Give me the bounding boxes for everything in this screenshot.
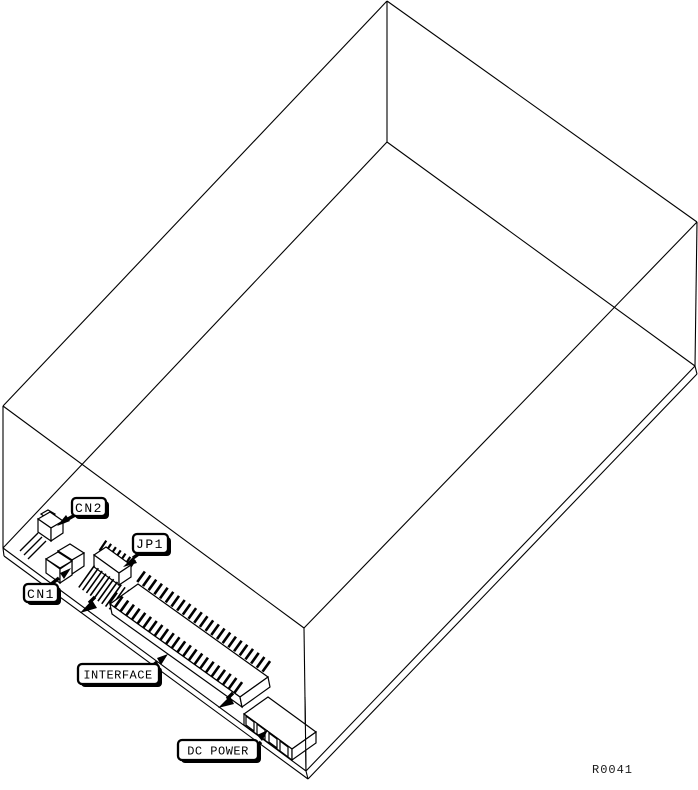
cn2-label: CN2 <box>75 501 103 516</box>
isometric-drive-diagram: CN2 CN1 JP1 INTERFACE DC POWER R0041 <box>0 0 698 790</box>
interface-pin1-marker-tail <box>89 597 95 603</box>
dc-power-label: DC POWER <box>187 745 249 759</box>
figure-canvas: CN2 CN1 JP1 INTERFACE DC POWER R0041 <box>0 0 698 790</box>
edge-top-rear-right <box>387 1 697 222</box>
cn2-pin <box>20 533 38 551</box>
front-vertical-overlay <box>305 697 306 771</box>
interface-leader-arrow <box>157 654 168 665</box>
callout-dc-power: DC POWER <box>178 730 268 763</box>
plate-right-end <box>695 366 697 374</box>
figure-ref-code: R0041 <box>592 763 633 777</box>
cn1-label: CN1 <box>27 587 55 602</box>
edge-bottom-front-right <box>306 366 695 771</box>
plate-edge-right <box>308 374 697 779</box>
cn2-pin <box>28 541 46 559</box>
cn2-connector <box>20 510 63 559</box>
callout-cn2: CN2 <box>57 498 109 526</box>
cn2-pin <box>24 537 42 555</box>
jp1-label: JP1 <box>136 537 164 552</box>
edge-right-vertical <box>695 222 697 366</box>
edge-bottom-rear-right <box>387 142 695 366</box>
chassis-wireframe <box>3 1 697 771</box>
callout-jp1: JP1 <box>123 534 171 567</box>
interface-label: INTERFACE <box>83 669 152 683</box>
